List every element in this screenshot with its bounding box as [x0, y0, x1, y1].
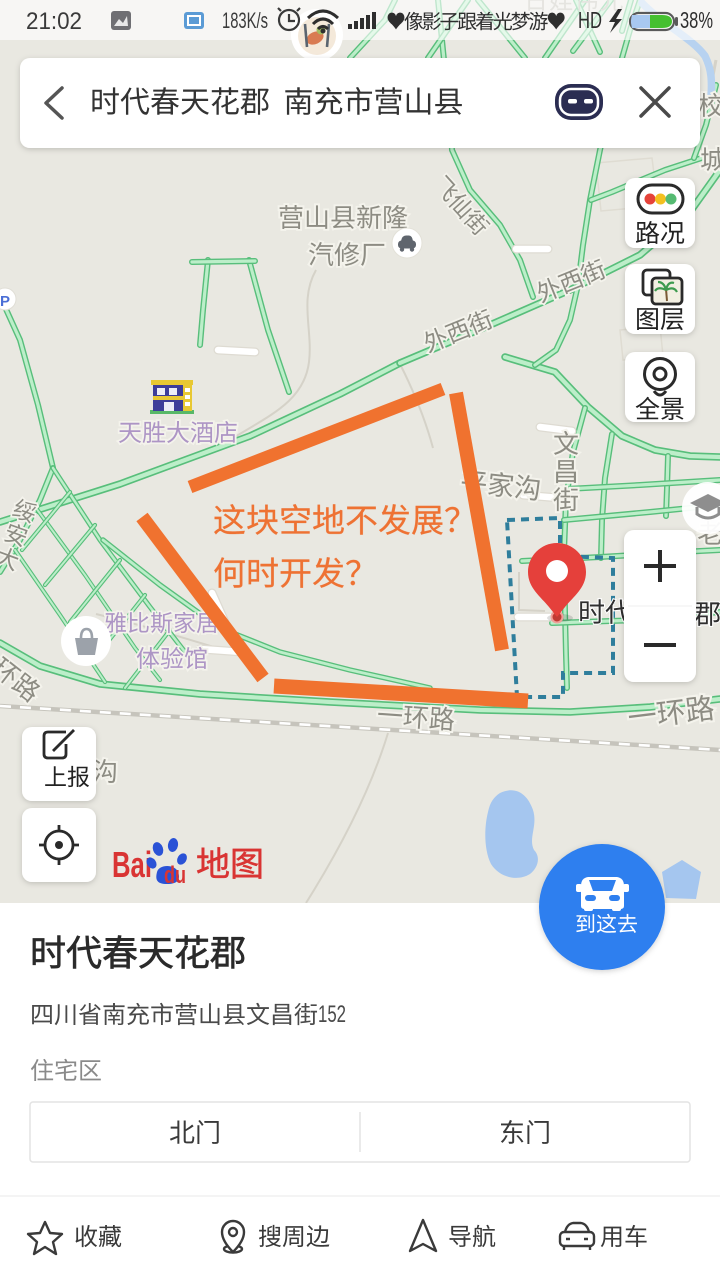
svg-text:38%: 38%	[680, 7, 713, 33]
svg-text:HD: HD	[578, 7, 602, 33]
svg-text:Bai: Bai	[112, 844, 152, 885]
svg-text:183K/s: 183K/s	[222, 8, 268, 33]
svg-text:21:02: 21:02	[26, 8, 82, 35]
svg-text:152: 152	[318, 1001, 346, 1028]
svg-text:P: P	[0, 293, 10, 310]
svg-text:du: du	[164, 862, 186, 889]
